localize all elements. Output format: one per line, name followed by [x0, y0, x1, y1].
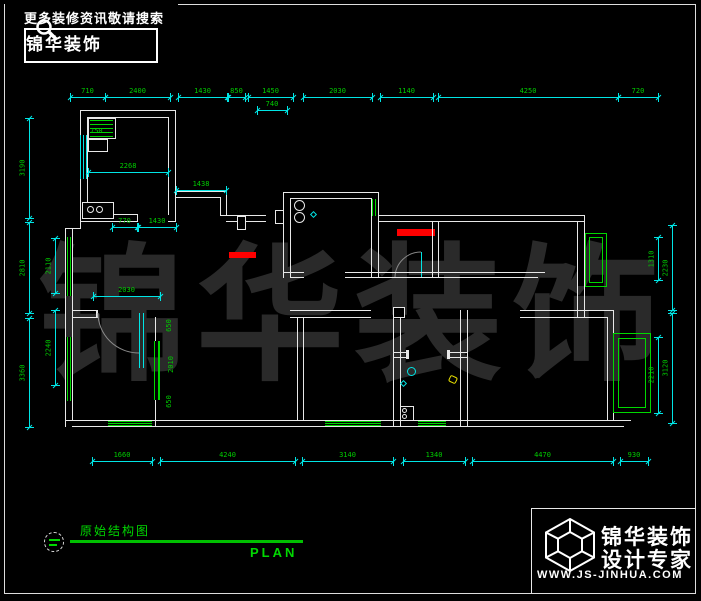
- title-underline: [70, 540, 303, 543]
- drawing-element: [582, 551, 594, 557]
- brand-search-box: 锦华装饰: [24, 28, 158, 63]
- titleblock-website: WWW.JS-JINHUA.COM: [537, 569, 683, 581]
- cube-logo-icon: [541, 516, 599, 574]
- drawing-element: [49, 32, 56, 39]
- drawing-element: [582, 533, 594, 539]
- section-marker-icon: [44, 532, 64, 552]
- drawing-element: [34, 17, 60, 43]
- titleblock-border: [531, 508, 696, 509]
- sheet-title: 原始结构图: [80, 522, 150, 539]
- titleblock-border: [531, 508, 532, 593]
- green-line: [49, 544, 57, 546]
- drawing-element: [558, 532, 582, 558]
- plan-label: PLAN: [250, 545, 297, 560]
- drawing-element: [546, 519, 594, 571]
- drawing-element: [546, 533, 558, 539]
- cad-floorplan-screenshot: 锦华装饰: [0, 0, 701, 601]
- search-banner: 更多装修资讯敬请搜索 锦华装饰: [0, 0, 180, 70]
- drawing-element: [546, 551, 558, 557]
- green-line: [49, 539, 60, 541]
- branding-layer: 更多装修资讯敬请搜索 锦华装饰 原始结构图 PLAN: [0, 0, 701, 601]
